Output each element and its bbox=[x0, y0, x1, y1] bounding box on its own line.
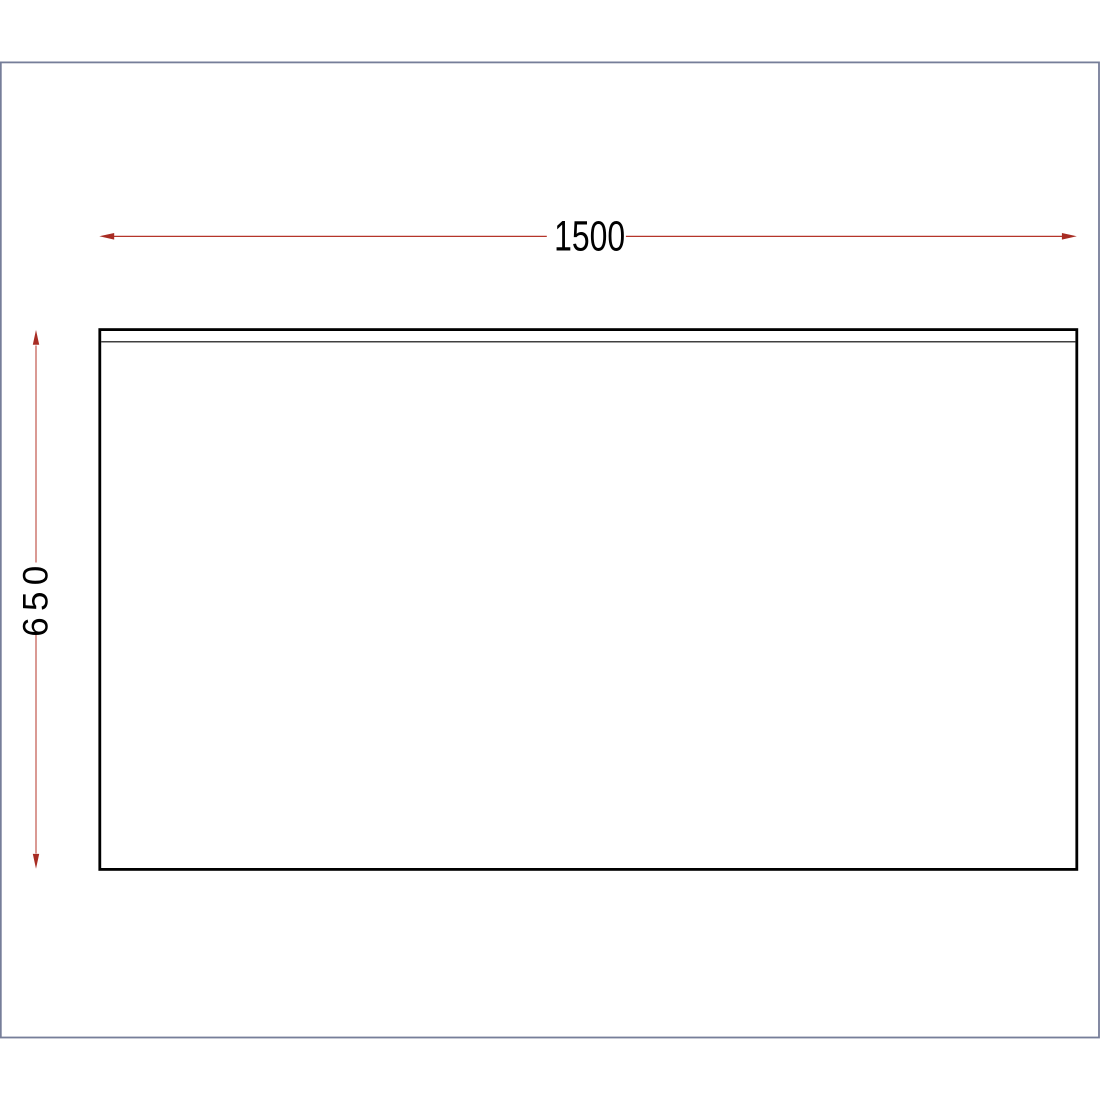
svg-text:650: 650 bbox=[17, 566, 56, 637]
svg-text:1500: 1500 bbox=[554, 213, 625, 261]
